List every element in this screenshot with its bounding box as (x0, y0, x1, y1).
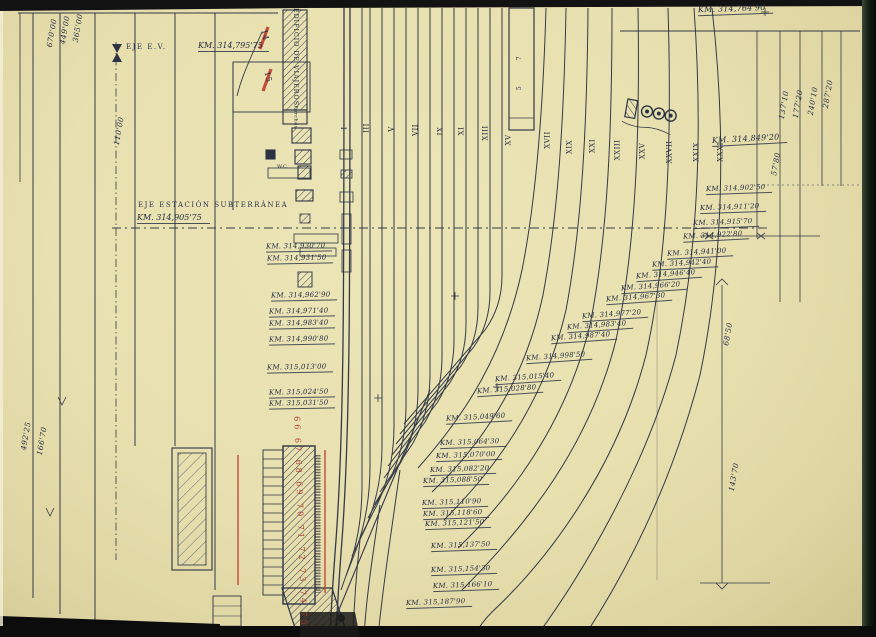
track-number: V (389, 126, 396, 132)
track-number: XV (506, 134, 513, 145)
blueprint-canvas: EJE E.V. KM. 314,795'75 14 15 EDIFICIO D… (0, 0, 876, 637)
km-annotation-left: KM. 315,031'50 (269, 399, 336, 409)
track-number: VII (413, 124, 420, 136)
platform-number: 7 (517, 56, 523, 60)
km-annotation-left: KM. 314,962'90 (271, 291, 338, 301)
km-annotation-left: KM. 314,971'40 (269, 307, 336, 317)
km-annotation-left: KM. 315,013'00 (267, 363, 334, 373)
track-number: XXIII (615, 140, 622, 161)
track-number: XIX (567, 140, 574, 154)
km-annotation-left: KM. 314,983'40 (269, 319, 336, 329)
track-number: XVII (545, 131, 552, 149)
track-number: XXIX (694, 142, 701, 162)
km-annotation-left: KM. 314,930'70 (266, 242, 333, 252)
track-number: I (342, 126, 349, 129)
km-annotation-left: KM. 314,931'50 (267, 254, 334, 264)
eje-ev-km: KM. 314,795'75 (198, 42, 269, 52)
building-label: EDIFICIO DE VIAJEROS (292, 8, 298, 106)
track-number: XXV (640, 143, 647, 160)
km-annotation-left: KM. 314,990'80 (269, 335, 336, 345)
axis-marker-icon (112, 44, 122, 62)
km-annotation-left: KM. 315,024'50 (269, 388, 336, 398)
wc-label: W.C. (277, 165, 288, 170)
eje-ev-label: EJE E.V. (126, 44, 167, 51)
axis-km: KM. 314,905'75 (137, 214, 210, 224)
track-number: XXVII (667, 140, 674, 163)
track-number: XIII (483, 125, 490, 140)
track-number: XXXI (718, 142, 725, 162)
red-mark-15: 15 (263, 71, 273, 84)
red-mark-14: 14 (260, 29, 270, 42)
porches-label: Porches (293, 105, 298, 129)
platform-number: 5 (517, 86, 523, 90)
track-number: XI (459, 127, 466, 136)
axis-label: EJE ESTACIÓN SUBTERRÁNEA (138, 202, 288, 209)
track-number: XXI (590, 139, 597, 153)
track-number: III (364, 123, 371, 133)
track-number: IX (438, 127, 445, 136)
